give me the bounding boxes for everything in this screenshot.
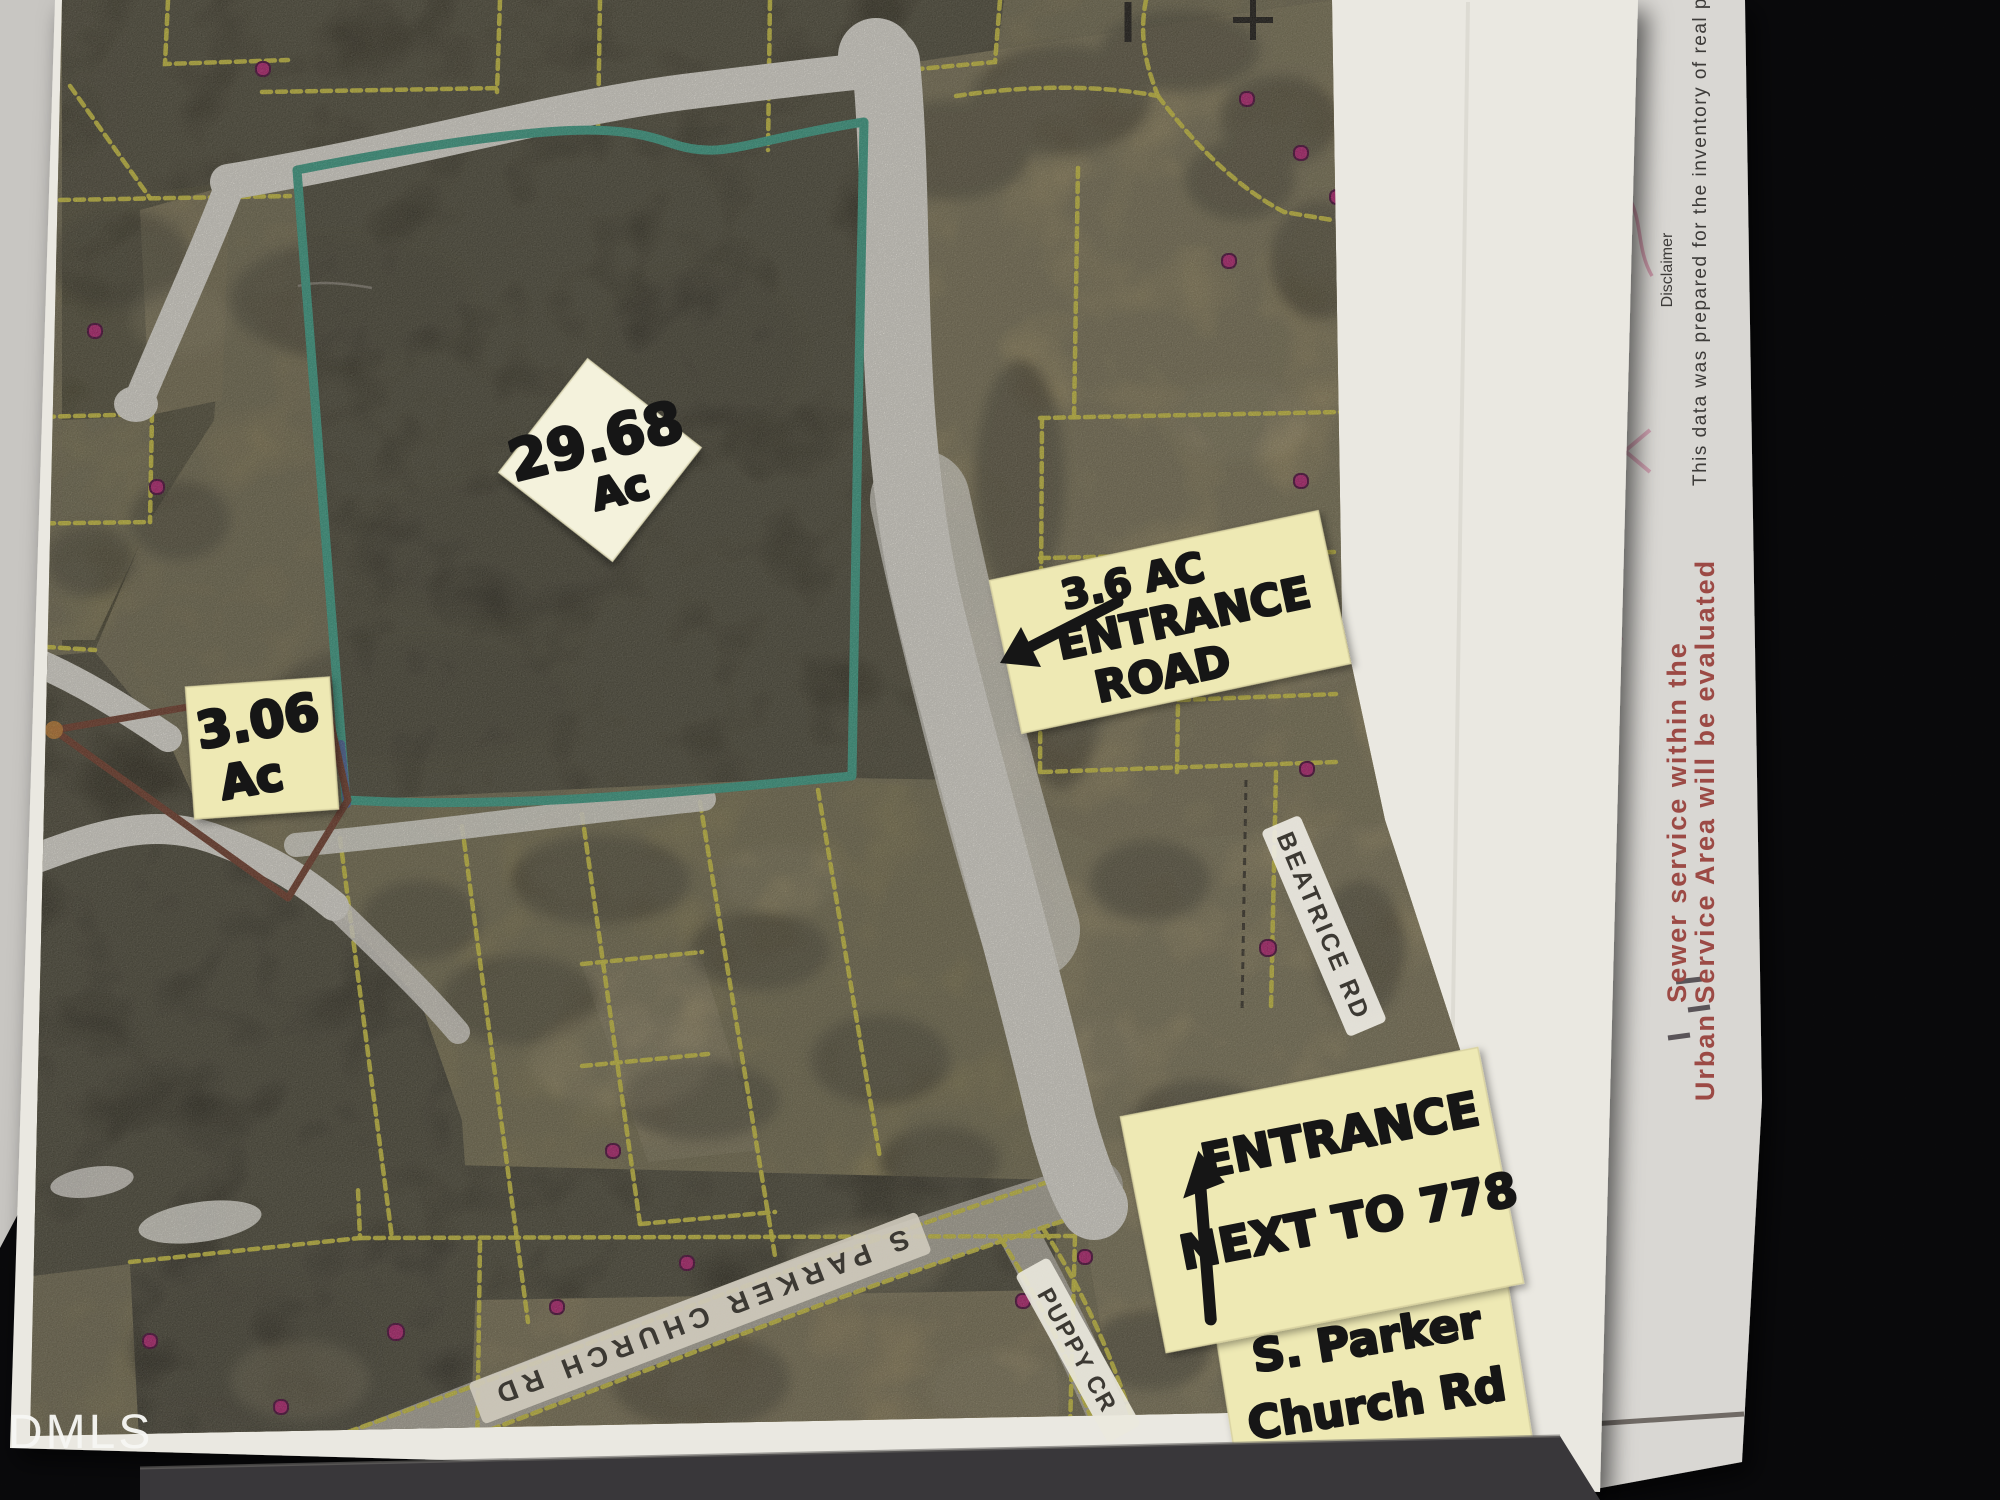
disclaimer-body: This data was prepared for the inventory… [1690, 0, 1711, 486]
disclaimer-title: Disclaimer [1659, 232, 1676, 307]
handwriting-3-06-ac: Ac [216, 746, 287, 810]
dmls-watermark: DMLS [8, 1406, 153, 1459]
sewer-note-line1: Sewer service within the [1662, 641, 1692, 1003]
sticky-note-3-06: 3.06 Ac [186, 677, 339, 819]
photo-of-parcel-map: Disclaimer This data was prepared for th… [0, 0, 2000, 1500]
sewer-note-line2: Urban Service Area will be evaluated [1690, 559, 1720, 1101]
